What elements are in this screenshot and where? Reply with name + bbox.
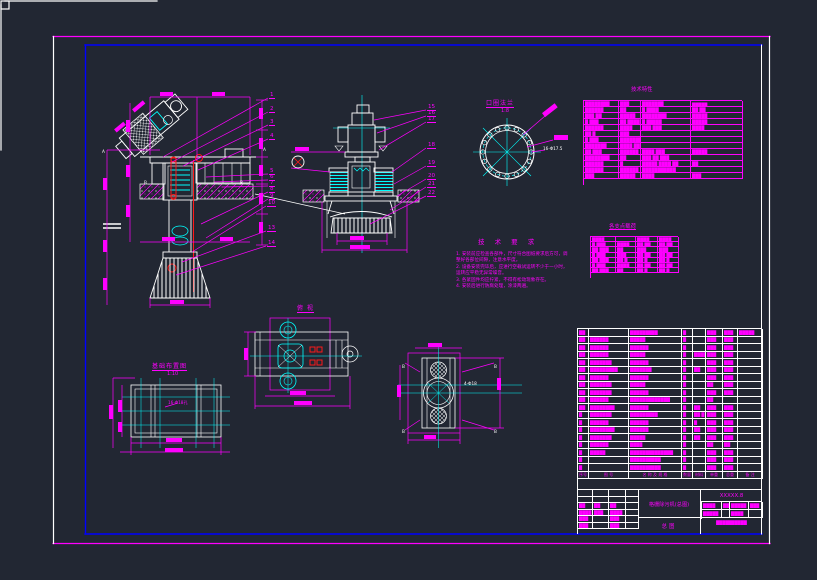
parts-list-cell: ███ (723, 464, 738, 472)
parts-list-cell: 序号 (578, 472, 589, 480)
parts-list-cell: ██ (578, 359, 589, 367)
parts-list-cell: █████████ (629, 329, 682, 337)
parts-list-cell (738, 389, 763, 397)
section-cut-letter-a-left: A (102, 149, 105, 154)
section-letter-b4: B (494, 429, 497, 434)
flange-view-scale: 1:8 (501, 108, 509, 114)
part-balloon-3: 3 (269, 119, 275, 126)
parts-list-cell: ███ (706, 412, 723, 420)
parts-list-cell: ██ (693, 404, 706, 412)
parts-list-cell: █████ (738, 329, 763, 337)
parts-list-cell (693, 382, 706, 390)
parts-list-cell: ███ (706, 337, 723, 345)
info-bottom-blob: ██████████ (701, 520, 762, 525)
parts-list-cell: █ (682, 389, 693, 397)
parts-list-cell: ██ (578, 404, 589, 412)
section-cut-letter-a-right: A (263, 147, 266, 152)
part-balloon-4: 4 (269, 133, 275, 140)
parts-list-cell (693, 359, 706, 367)
parts-list-cell: ███████ (589, 389, 629, 397)
parts-list-cell: 总重 (723, 472, 738, 480)
parts-list-cell: ███ (723, 404, 738, 412)
parts-list-cell: ███ (723, 434, 738, 442)
tech-table-title: 技术特性 (631, 85, 653, 93)
parts-list-cell: ███ (706, 404, 723, 412)
parts-list-cell (738, 442, 763, 450)
parts-list-cell: █ (682, 457, 693, 465)
parts-list-cell (738, 382, 763, 390)
parts-list-cell (738, 412, 763, 420)
parts-list-cell: ██████ (629, 419, 682, 427)
title-block-info-cell: XXXXX.8 ███████████████████████ ████████… (700, 489, 762, 534)
info-cell: ████ (702, 502, 722, 510)
parts-list-cell: ████ (693, 352, 706, 360)
parts-list-cell: ██ (578, 344, 589, 352)
parts-list-cell (738, 434, 763, 442)
load-table-cell: ██ (616, 268, 636, 273)
part-balloon-21: 21 (427, 181, 436, 188)
parts-list-cell: ██ █ (693, 412, 706, 420)
parts-list-cell: █ (682, 464, 693, 472)
parts-list-cell: 备 注 (738, 472, 763, 480)
section-cut-letter-b-left: B (144, 180, 147, 185)
parts-list-cell: ██ (578, 382, 589, 390)
drawing-code: XXXXX.8 (701, 493, 762, 499)
parts-list-cell: █████ (589, 449, 629, 457)
parts-list-cell (738, 427, 763, 435)
parts-list-cell: █ (578, 419, 589, 427)
parts-list-cell: 数量 (682, 472, 693, 480)
parts-list-cell: ███ (723, 329, 738, 337)
parts-list-cell: ██████ (629, 427, 682, 435)
part-balloon-18: 18 (427, 142, 436, 149)
info-cell: █████ (702, 510, 722, 518)
parts-list-cell (738, 352, 763, 360)
parts-list-cell: ███ (723, 427, 738, 435)
parts-list-cell: ██ (693, 434, 706, 442)
support-load-table: █████████████ █████████ ████ ████ ██████… (590, 236, 678, 278)
signature-cell (593, 523, 609, 530)
section-letter-b3: B (494, 364, 497, 369)
parts-list-cell: ██ (578, 367, 589, 375)
parts-list-cell: 单重 (706, 472, 723, 480)
view-flange (473, 103, 568, 186)
parts-list-cell: 材料 (693, 472, 706, 480)
flange-view-title: 口圈法兰 (486, 100, 514, 108)
parts-list-cell: ███████ (629, 367, 682, 375)
parts-list-cell: █████ (629, 382, 682, 390)
parts-list-cell: ██ (578, 352, 589, 360)
parts-list-cell: ██████ (629, 359, 682, 367)
parts-list-cell: ███ (723, 352, 738, 360)
parts-list-cell: █ (578, 412, 589, 420)
parts-list-cell (738, 449, 763, 457)
parts-list-cell: ███ (706, 389, 723, 397)
parts-list-cell: ███████ (589, 412, 629, 420)
parts-list-cell: ██ (578, 374, 589, 382)
parts-list-cell: ██████ (629, 389, 682, 397)
parts-list-cell: ████████ (589, 404, 629, 412)
parts-list-cell: █ (682, 412, 693, 420)
parts-list-cell: ███ (706, 352, 723, 360)
parts-list-cell: ██████ (589, 337, 629, 345)
parts-list-cell: ██ (578, 337, 589, 345)
parts-list-cell: █ (682, 367, 693, 375)
drawing-sub-title: 总图 (638, 522, 700, 530)
parts-list-cell: ███ (706, 367, 723, 375)
section-hole-callout: 4-Φ18 (464, 381, 477, 386)
parts-list-cell: ███ (706, 464, 723, 472)
parts-list-cell (589, 329, 629, 337)
parts-list-cell (738, 337, 763, 345)
parts-list-cell: █████████████ (629, 397, 682, 405)
parts-list-cell: ███ (723, 419, 738, 427)
drawing-main-title: 格栅除污机(总图) (638, 501, 700, 508)
parts-list-cell: █ (682, 344, 693, 352)
part-balloon-8: 8 (269, 186, 275, 193)
title-block-signature-grid: █████████████████████████████ (577, 489, 638, 534)
load-table-title: 各支点载荷 (609, 222, 636, 230)
parts-list-cell (738, 367, 763, 375)
parts-list-cell: ██ (578, 397, 589, 405)
parts-list-cell: █ (578, 449, 589, 457)
parts-list-cell (589, 457, 629, 465)
parts-list-cell: █ (682, 404, 693, 412)
info-cell: █████ (730, 502, 749, 510)
parts-list-cell: ██████ (589, 374, 629, 382)
parts-list-cell: ███ (706, 457, 723, 465)
parts-list-cell: █ (578, 464, 589, 472)
signature-cell: ███ (609, 523, 626, 530)
parts-list-cell: █████████ (629, 412, 682, 420)
view-front-elevation (291, 95, 419, 253)
parts-list-cell (693, 464, 706, 472)
parts-list-cell (693, 374, 706, 382)
plan-view-title: 俯 视 (297, 305, 314, 313)
load-table-cell: ██ █ (658, 268, 679, 273)
parts-list-cell: █████ (629, 434, 682, 442)
part-balloon-2: 2 (269, 106, 275, 113)
parts-list-cell (693, 449, 706, 457)
part-balloon-14: 14 (267, 240, 276, 247)
parts-list-cell: █ (682, 374, 693, 382)
parts-list-cell: █ (578, 434, 589, 442)
parts-list-cell: ██████ (589, 397, 629, 405)
parts-list-cell: ██████ (589, 442, 629, 450)
parts-list-cell: ███ (723, 457, 738, 465)
parts-list-cell: █████████ (589, 367, 629, 375)
signature-cell: ███ (578, 523, 593, 530)
info-cell: ███ (749, 502, 763, 510)
parts-list-cell: ██ (693, 367, 706, 375)
parts-list-cell: ██ (578, 389, 589, 397)
parts-list-cell (738, 397, 763, 405)
parts-list-cell: █ (682, 419, 693, 427)
view-section-bb (397, 343, 522, 448)
parts-list-cell (738, 464, 763, 472)
part-balloon-17: 17 (427, 116, 436, 123)
parts-list-cell: ███ (706, 344, 723, 352)
parts-list-cell (693, 344, 706, 352)
parts-list-cell: ██ (693, 427, 706, 435)
parts-list-cell (693, 389, 706, 397)
load-table-cell: ██ ███ (591, 268, 616, 273)
tech-notes-list: 1. 安装前应检查各部件，尺寸符合图纸要求后方可，调 整好各部位间隙，注意水平度… (456, 252, 586, 290)
parts-list-cell (738, 374, 763, 382)
parts-list-cell (693, 457, 706, 465)
parts-list-cell (738, 419, 763, 427)
parts-list-cell: █ (682, 382, 693, 390)
parts-list-cell: █ (682, 352, 693, 360)
tech-table-cell: ███ (584, 173, 619, 179)
parts-list-cell: ███ (706, 359, 723, 367)
section-letter-b2: B (402, 429, 405, 434)
parts-list-cell: █ (682, 442, 693, 450)
parts-list-cell: ███████ (589, 382, 629, 390)
parts-list-cell (589, 464, 629, 472)
parts-list-cell: █ (578, 457, 589, 465)
parts-list-cell: ███ (723, 449, 738, 457)
parts-list-cell (738, 404, 763, 412)
parts-list-cell: ███ (706, 329, 723, 337)
foundation-view-scale: 1:10 (167, 371, 178, 377)
parts-list-cell: ██ (723, 442, 738, 450)
parts-list-cell: ██████ (589, 352, 629, 360)
parts-list-cell: ███ (723, 382, 738, 390)
parts-list-cell: █ (682, 337, 693, 345)
parts-list-cell: ███████ (589, 434, 629, 442)
parts-list-cell (738, 344, 763, 352)
parts-list-cell (723, 397, 738, 405)
parts-list-cell: ██████████████ (629, 449, 682, 457)
parts-list-cell: ███ (723, 412, 738, 420)
tech-table-cell: █████ (619, 173, 641, 179)
parts-list-cell: ███ (706, 427, 723, 435)
part-balloon-20: 20 (427, 173, 436, 180)
info-cell (722, 510, 730, 518)
parts-list-cell (693, 442, 706, 450)
parts-list-cell (693, 337, 706, 345)
parts-list-cell: ██████ (629, 344, 682, 352)
parts-list-cell: █ (693, 419, 706, 427)
parts-list-table: ████████████████████████████████████████… (577, 328, 762, 489)
parts-list-cell: █████ (629, 352, 682, 360)
parts-list-cell: ██████ (589, 419, 629, 427)
parts-list-cell: ██ (578, 329, 589, 337)
part-balloon-1: 1 (269, 92, 275, 99)
tech-table-cell: ███ (691, 173, 743, 179)
parts-list-cell: █ (682, 434, 693, 442)
parts-list-cell: ██████ (629, 374, 682, 382)
load-table-cell: ██ █ (636, 268, 658, 273)
parts-list-cell: ████ (629, 442, 682, 450)
parts-list-cell: ██████ (589, 344, 629, 352)
part-balloon-9: 9 (269, 193, 275, 200)
parts-list-cell: █ (682, 449, 693, 457)
parts-list-cell: ███ (706, 449, 723, 457)
parts-list-cell: ██████ (629, 404, 682, 412)
parts-list-cell: █ (682, 359, 693, 367)
parts-list-cell: ███ (723, 344, 738, 352)
cad-drawing-canvas: A A B B 口圈法兰 1:8 16-Φ17.5 俯 视 B B B B 4-… (0, 0, 817, 580)
parts-list-cell: █ (682, 397, 693, 405)
tech-characteristics-table: ██████████████████▆▆▆▆▆█████████ ██████ … (583, 100, 742, 185)
info-cell: ██ (722, 502, 730, 510)
info-cell (749, 510, 763, 518)
flange-hole-callout: 16-Φ17.5 (543, 146, 562, 151)
parts-list-cell: ██ (706, 442, 723, 450)
section-cut-letter-b-right: B (240, 180, 243, 185)
tech-table-cell: ████ (641, 173, 691, 179)
part-balloon-10: 10 (267, 200, 276, 207)
part-balloon-22: 22 (427, 190, 436, 197)
view-plan (244, 318, 362, 409)
parts-list-cell (693, 397, 706, 405)
part-balloon-19: 19 (427, 160, 436, 167)
parts-list-cell: 名 称 及 规 格 (629, 472, 682, 480)
parts-list-cell: █ (578, 442, 589, 450)
tech-notes-title: 技 术 要 求 (478, 236, 538, 246)
parts-list-cell: ████████ (589, 427, 629, 435)
view-foundation-plan (109, 378, 230, 455)
parts-list-cell: ███ (706, 434, 723, 442)
parts-list-cell (693, 329, 706, 337)
parts-list-cell: ██████████ (629, 464, 682, 472)
foundation-view-title: 基础布置图 (152, 363, 187, 371)
parts-list-cell: ███ (723, 337, 738, 345)
parts-list-cell: ███ (706, 374, 723, 382)
parts-list-cell: ██ (706, 382, 723, 390)
parts-list-cell: ███ (723, 389, 738, 397)
parts-list-cell (738, 457, 763, 465)
foundation-hole-callout: 16-Φ18孔 (168, 400, 188, 406)
section-letter-b1: B (402, 364, 405, 369)
parts-list-cell: ███ (706, 419, 723, 427)
parts-list-cell (738, 359, 763, 367)
parts-list-cell: ███ (723, 367, 738, 375)
parts-list-cell: ███ (723, 374, 738, 382)
title-block-title-cell: 格栅除污机(总图) 总图 (638, 489, 700, 534)
part-balloon-13: 13 (267, 225, 276, 232)
parts-list-cell: 图 号 (589, 472, 629, 480)
parts-list-cell: ███████ (589, 359, 629, 367)
parts-list-cell: █ (578, 427, 589, 435)
parts-list-cell: █████ (629, 337, 682, 345)
info-cell: ████ (730, 510, 749, 518)
parts-list-cell: █ (682, 427, 693, 435)
parts-list-cell: ██████████ (629, 457, 682, 465)
tech-note-line: 4. 安装后进行防腐处理，涂漆两遍。 (456, 284, 586, 290)
parts-list-cell: ███ (723, 359, 738, 367)
parts-list-cell: ██ (706, 397, 723, 405)
parts-list-cell: █ (682, 329, 693, 337)
